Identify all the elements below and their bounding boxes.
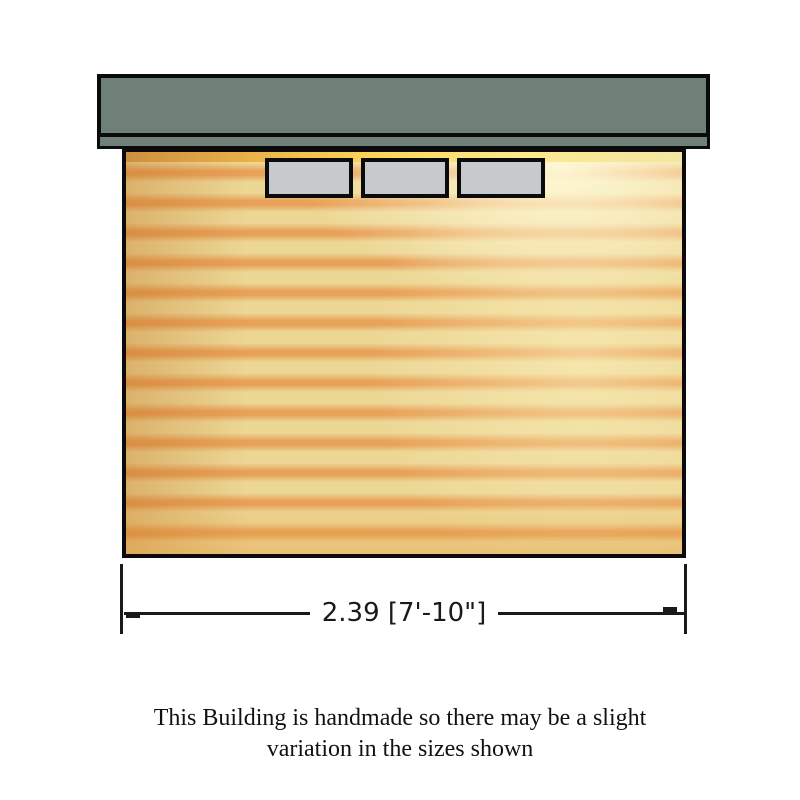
dimension-tick-left — [126, 613, 140, 618]
dimension-extension-line-left — [120, 564, 123, 634]
window-pane-2 — [361, 158, 449, 198]
dimension-width-label: 2.39 [7'-10"] — [310, 598, 499, 628]
dimension-tick-right — [663, 607, 677, 612]
dimension-extension-line-right — [684, 564, 687, 634]
dimension-line-right-segment — [498, 612, 684, 615]
window-pane-1 — [265, 158, 353, 198]
disclaimer-line-2: variation in the sizes shown — [0, 734, 800, 765]
shed-elevation-diagram: 2.39 [7'-10"] This Building is handmade … — [0, 0, 800, 800]
roof-panel — [97, 74, 710, 137]
disclaimer-line-1: This Building is handmade so there may b… — [0, 703, 800, 734]
window-pane-3 — [457, 158, 545, 198]
wall-cladding — [122, 148, 686, 558]
dimension-line-left-segment — [124, 612, 310, 615]
dimension-line: 2.39 [7'-10"] — [124, 599, 684, 627]
handmade-disclaimer: This Building is handmade so there may b… — [0, 703, 800, 765]
